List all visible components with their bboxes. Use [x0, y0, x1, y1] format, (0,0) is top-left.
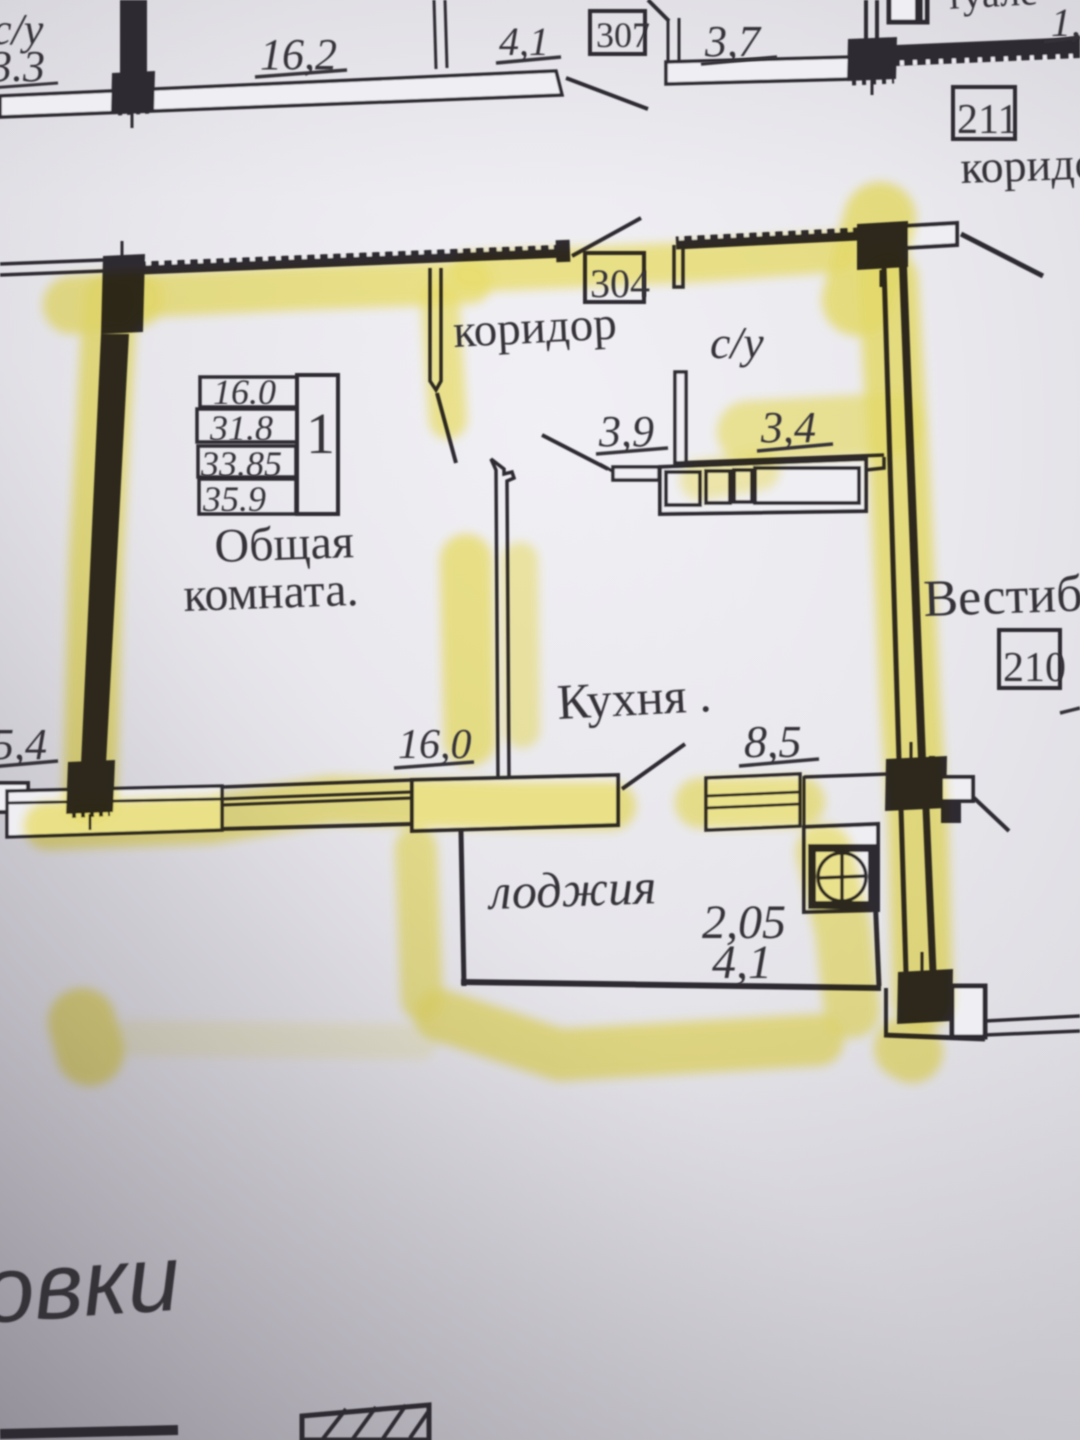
svg-text:16,0: 16,0	[398, 722, 472, 768]
svg-text:лоджия: лоджия	[485, 858, 657, 920]
svg-text:307: 307	[596, 15, 650, 55]
svg-text:1: 1	[306, 401, 335, 466]
svg-text:211: 211	[957, 97, 1018, 143]
svg-text:16.0: 16.0	[213, 372, 276, 412]
svg-text:210: 210	[1003, 645, 1066, 691]
svg-text:коридор: коридор	[960, 136, 1080, 193]
svg-text:31.8: 31.8	[209, 408, 273, 448]
svg-text:комната.: комната.	[183, 563, 360, 622]
svg-text:33.85: 33.85	[200, 444, 282, 484]
svg-text:Вестибюль: Вестибюль	[922, 562, 1080, 628]
svg-text:коридор: коридор	[452, 297, 618, 357]
svg-text:304: 304	[590, 261, 650, 306]
svg-text:с/у: с/у	[710, 317, 764, 368]
svg-text:4,1: 4,1	[712, 936, 772, 989]
svg-text:35.9: 35.9	[202, 479, 266, 519]
svg-text:овки: овки	[0, 1225, 183, 1344]
svg-text:8,5: 8,5	[744, 716, 802, 767]
svg-text:Кухня .: Кухня .	[556, 666, 713, 730]
